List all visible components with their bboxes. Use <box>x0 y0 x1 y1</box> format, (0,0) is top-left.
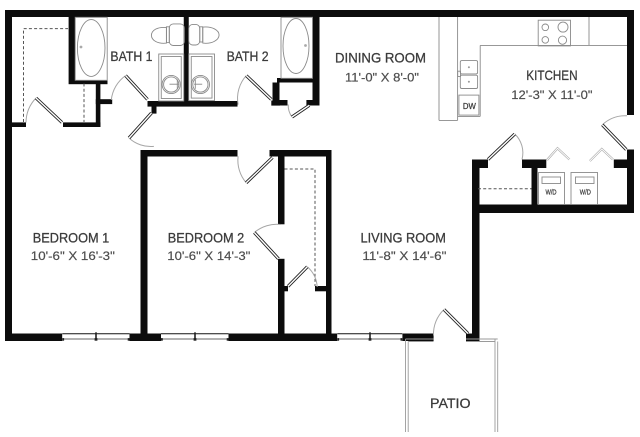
svg-text:BATH 2: BATH 2 <box>227 48 269 64</box>
svg-text:10'-6" X 14'-3": 10'-6" X 14'-3" <box>167 249 250 263</box>
svg-text:DW: DW <box>463 101 476 111</box>
svg-text:DINING ROOM: DINING ROOM <box>335 50 426 66</box>
svg-text:10'-6" X 16'-3": 10'-6" X 16'-3" <box>31 249 115 263</box>
svg-text:11'-8" X 14'-6": 11'-8" X 14'-6" <box>362 249 446 263</box>
svg-text:PATIO: PATIO <box>430 395 471 411</box>
svg-text:W/D: W/D <box>545 188 556 197</box>
svg-text:LIVING ROOM: LIVING ROOM <box>360 229 446 245</box>
svg-text:BEDROOM 2: BEDROOM 2 <box>168 229 245 245</box>
svg-text:W/D: W/D <box>580 188 591 197</box>
svg-text:12'-3" X 11'-0": 12'-3" X 11'-0" <box>511 88 592 102</box>
svg-text:BEDROOM 1: BEDROOM 1 <box>33 229 110 245</box>
svg-text:11'-0" X 8'-0": 11'-0" X 8'-0" <box>345 71 419 85</box>
svg-text:BATH 1: BATH 1 <box>110 48 152 64</box>
svg-text:KITCHEN: KITCHEN <box>526 67 577 83</box>
